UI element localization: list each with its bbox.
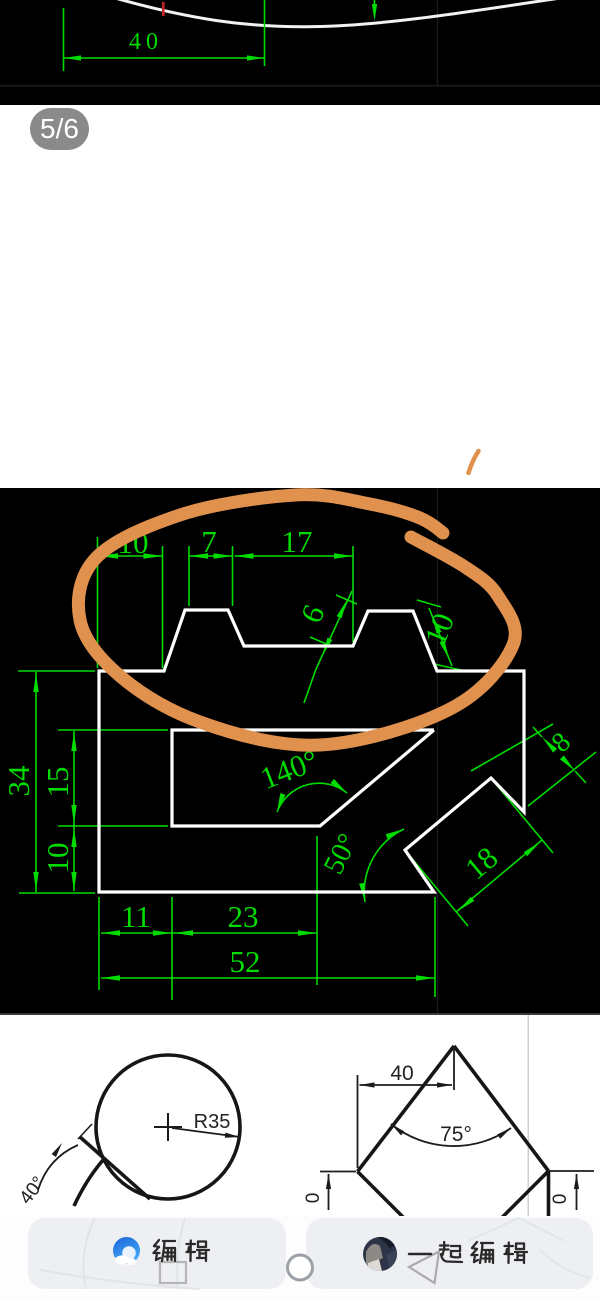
svg-text:R35: R35 <box>194 1111 231 1133</box>
svg-text:0: 0 <box>303 1193 324 1204</box>
svg-text:7: 7 <box>201 524 217 559</box>
svg-text:52: 52 <box>230 944 261 979</box>
svg-text:0: 0 <box>550 1194 571 1205</box>
svg-text:40: 40 <box>129 29 163 55</box>
svg-text:23: 23 <box>228 899 259 934</box>
svg-text:75°: 75° <box>440 1123 472 1146</box>
svg-text:11: 11 <box>121 899 151 934</box>
svg-text:34: 34 <box>1 765 36 797</box>
svg-text:5/6: 5/6 <box>40 113 79 144</box>
svg-text:17: 17 <box>282 524 313 559</box>
svg-text:40: 40 <box>390 1062 413 1085</box>
svg-text:15: 15 <box>40 767 75 798</box>
svg-text:10: 10 <box>40 843 75 874</box>
